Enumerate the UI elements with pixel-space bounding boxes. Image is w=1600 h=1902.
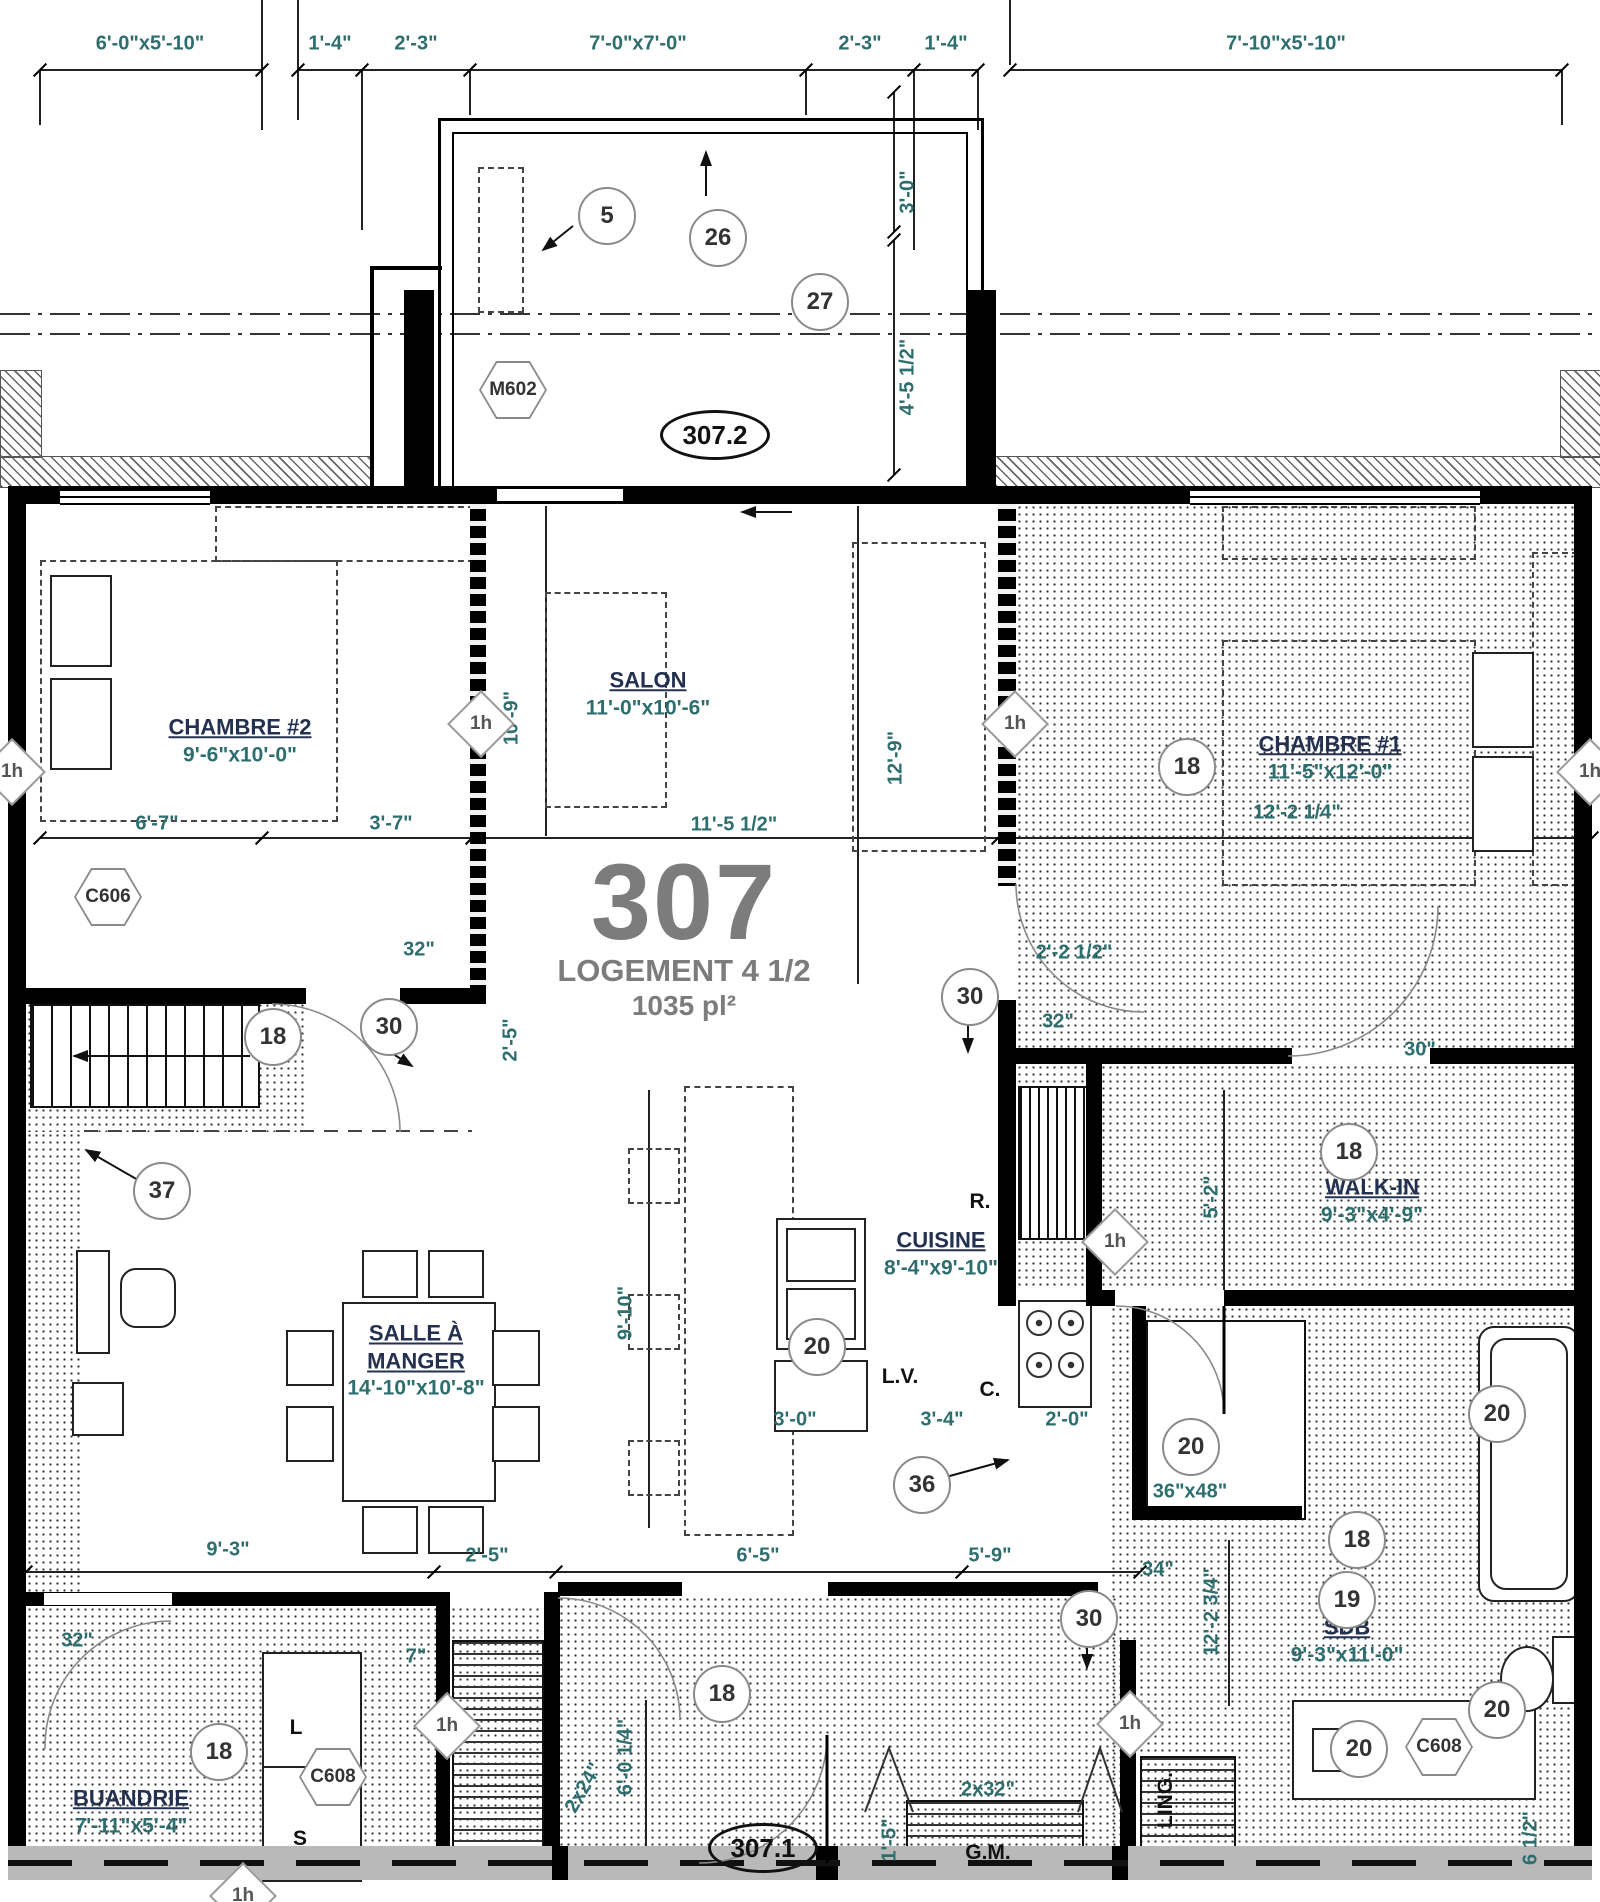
callout-circle-18: 18 <box>1158 738 1216 796</box>
unit-title-block: 307 LOGEMENT 4 1/2 1035 pl² <box>534 852 834 1022</box>
dim-label: 3'-7" <box>369 813 412 836</box>
dim-label: 3'-4" <box>920 1409 963 1432</box>
dim-label: 7" <box>406 1646 427 1669</box>
unit-area: 1035 pl² <box>534 990 834 1022</box>
callout-circle-20: 20 <box>1330 1720 1388 1778</box>
dim-label: 3'-0" <box>773 1409 816 1432</box>
room-label-salon: SALON11'-0"x10'-6" <box>586 666 710 720</box>
dim-label: 4'-5 1/2" <box>897 339 920 416</box>
dim-label: 36"x48" <box>1153 1481 1228 1504</box>
dim-label: 1'-4" <box>924 33 967 56</box>
room-size: 7'-11"x5'-4" <box>73 1814 189 1838</box>
dim-label: 2'-0" <box>1045 1409 1088 1432</box>
dim-label: 6'-7" <box>135 813 178 836</box>
fixture-label: L <box>290 1716 303 1740</box>
unit-type: LOGEMENT 4 1/2 <box>534 952 834 990</box>
callout-circle-18: 18 <box>693 1665 751 1723</box>
callout-hex-C606: C606 <box>74 868 142 926</box>
callout-oval-307.1: 307.1 <box>708 1823 818 1873</box>
room-size: 9'-3"x11'-0" <box>1291 1643 1404 1667</box>
callout-circle-30: 30 <box>1060 1590 1118 1648</box>
dim-label: 32" <box>61 1630 93 1653</box>
fixture-label: S <box>293 1827 307 1851</box>
room-label-salle-manger: SALLE À MANGER14'-10"x10'-8" <box>347 1320 484 1401</box>
room-size: 9'-3"x4'-9" <box>1321 1203 1423 1227</box>
dim-label: 1'-4" <box>308 33 351 56</box>
dim-label: 11'-5 1/2" <box>691 814 778 837</box>
room-name: SALLE À MANGER <box>347 1320 484 1375</box>
room-label-walk-in: WALK-IN9'-3"x4'-9" <box>1321 1173 1423 1227</box>
room-size: 14'-10"x10'-8" <box>347 1377 484 1401</box>
callout-circle-30: 30 <box>360 998 418 1056</box>
callout-circle-27: 27 <box>791 273 849 331</box>
fixture-label: R. <box>970 1190 991 1214</box>
room-size: 8'-4"x9'-10" <box>884 1256 998 1280</box>
room-name: CHAMBRE #1 <box>1258 730 1401 758</box>
room-size: 11'-0"x10'-6" <box>586 696 710 720</box>
room-name: BUANDRIE <box>73 1784 189 1812</box>
callout-circle-5: 5 <box>578 187 636 245</box>
callout-circle-36: 36 <box>893 1456 951 1514</box>
callout-hex-C608: C608 <box>299 1748 367 1806</box>
room-name: CHAMBRE #2 <box>168 713 311 741</box>
callout-circle-20: 20 <box>1468 1681 1526 1739</box>
dim-label: 32" <box>1042 1011 1074 1034</box>
callout-hex-M602: M602 <box>479 361 547 419</box>
dim-label: 6'-5" <box>736 1545 779 1568</box>
dim-label: 9'-3" <box>206 1539 249 1562</box>
dim-label: 2'-2 1/2" <box>1036 942 1113 965</box>
callout-oval-307.2: 307.2 <box>660 410 770 460</box>
floor-plan: 307 LOGEMENT 4 1/2 1035 pl² <box>0 0 1600 1902</box>
dim-label: 5'-2" <box>1201 1175 1224 1218</box>
callout-circle-20: 20 <box>1468 1385 1526 1443</box>
dim-label: 3'-0" <box>897 170 920 213</box>
dim-label: 2'-3" <box>838 33 881 56</box>
dim-label: 2'-5" <box>465 1545 508 1568</box>
callout-circle-18: 18 <box>190 1723 248 1781</box>
fixture-label: G.M. <box>965 1841 1011 1865</box>
callout-circle-18: 18 <box>1328 1511 1386 1569</box>
dim-label: 34" <box>1142 1559 1174 1582</box>
dim-label: 6'-0 1/4" <box>615 1719 638 1796</box>
callout-circle-37: 37 <box>133 1162 191 1220</box>
dim-label: 9'-10" <box>615 1286 638 1340</box>
dim-label: 12'-2 3/4" <box>1201 1568 1224 1656</box>
dim-label: 1'-5" <box>879 1818 902 1861</box>
callout-circle-26: 26 <box>689 209 747 267</box>
room-label-buandrie: BUANDRIE7'-11"x5'-4" <box>73 1784 189 1838</box>
callout-circle-18: 18 <box>244 1008 302 1066</box>
room-label-chambre-1: CHAMBRE #111'-5"x12'-0" <box>1258 730 1401 784</box>
dim-label: 6 1/2" <box>1520 1811 1543 1865</box>
callout-hex-C608: C608 <box>1405 1718 1473 1776</box>
dim-label: 6'-0"x5'-10" <box>96 33 205 56</box>
callout-circle-30: 30 <box>941 968 999 1026</box>
dim-label: 12'-9" <box>885 731 908 785</box>
dim-label: 7'-10"x5'-10" <box>1226 33 1346 56</box>
dim-label: 2'-3" <box>394 33 437 56</box>
room-size: 9'-6"x10'-0" <box>168 743 311 767</box>
callout-circle-18: 18 <box>1320 1123 1378 1181</box>
room-label-cuisine: CUISINE8'-4"x9'-10" <box>884 1226 998 1280</box>
dim-label: 32" <box>403 939 435 962</box>
fixture-label: LING. <box>1154 1772 1178 1828</box>
dim-label: 7'-0"x7'-0" <box>589 33 686 56</box>
dim-label: 12'-2 1/4" <box>1253 802 1341 825</box>
fixture-label: L.V. <box>882 1365 919 1389</box>
dim-label: 2'-5" <box>500 1018 523 1061</box>
dim-label: 30" <box>1404 1039 1436 1062</box>
callout-circle-20: 20 <box>1162 1418 1220 1476</box>
room-size: 11'-5"x12'-0" <box>1258 760 1401 784</box>
unit-number: 307 <box>534 852 834 952</box>
callout-circle-20: 20 <box>788 1318 846 1376</box>
room-name: CUISINE <box>884 1226 998 1254</box>
callout-circle-19: 19 <box>1318 1571 1376 1629</box>
dim-label: 2x32" <box>961 1779 1015 1802</box>
fixture-label: C. <box>980 1378 1001 1402</box>
room-label-chambre-2: CHAMBRE #29'-6"x10'-0" <box>168 713 311 767</box>
dim-label: 5'-9" <box>968 1545 1011 1568</box>
room-name: SALON <box>586 666 710 694</box>
